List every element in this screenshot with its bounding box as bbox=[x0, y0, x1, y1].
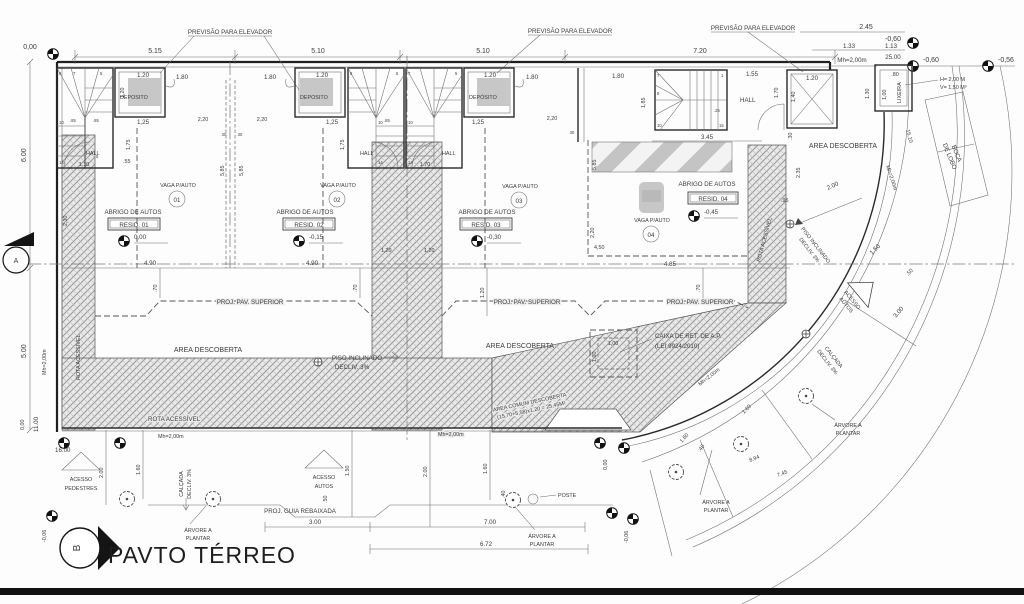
level-marker-bl1 bbox=[59, 438, 70, 449]
proj-pav-label-1: PROJ. PAV. SUPERIOR bbox=[217, 299, 284, 306]
dim-3-00-bot: 3.00 bbox=[309, 519, 322, 526]
dim-2-20-b: 2,20 bbox=[257, 117, 268, 123]
tree-3 bbox=[506, 493, 521, 508]
level-marker-u1 bbox=[119, 236, 130, 247]
dim-1-30-lix: 1.30 bbox=[865, 89, 871, 100]
lixeira-box: .80 1,00 LIXEIRA 1.30 H= 2,00 M V= 1,50 … bbox=[865, 65, 967, 111]
svg-text:2.00: 2.00 bbox=[99, 468, 105, 479]
level-marker-u3 bbox=[472, 236, 483, 247]
guia-rebaixada: PROJ. GUIA REBAIXADA bbox=[264, 508, 337, 515]
svg-text:10: 10 bbox=[657, 123, 662, 128]
dim-1-10-u1: 1.10 bbox=[79, 162, 90, 168]
svg-text:1,00: 1,00 bbox=[608, 341, 619, 347]
lixeira-note-v: V= 1,50 M³ bbox=[940, 85, 967, 91]
dim-1-33: 1.33 bbox=[843, 43, 856, 50]
dim-5-10b: 5.10 bbox=[476, 48, 490, 55]
mh-bottom-1: Mh=2,00m bbox=[158, 434, 184, 440]
svg-text:1,20: 1,20 bbox=[424, 248, 435, 254]
rota-bottom: ROTA ACESSÍVEL bbox=[148, 416, 201, 423]
svg-text:5: 5 bbox=[100, 71, 103, 76]
dim-1-80-u2: 1.80 bbox=[264, 74, 277, 81]
dim-1-75-u1: 1,75 bbox=[126, 140, 132, 151]
dim-1-00-lix: 1,00 bbox=[882, 90, 888, 101]
dim-4-90-u2: 4.90 bbox=[306, 260, 319, 267]
door-arc-dep1 bbox=[166, 79, 174, 87]
level-marker-bl2 bbox=[115, 438, 126, 449]
vaga-1-num: 01 bbox=[174, 197, 181, 204]
level-minus056: -0,56 bbox=[998, 57, 1014, 64]
svg-text:ÁRVORE A: ÁRVORE A bbox=[184, 527, 212, 534]
dim-15-10: 15.10 bbox=[904, 129, 913, 144]
elevator-shaft-2 bbox=[300, 78, 333, 106]
dim-2-30-left: 2,30 bbox=[63, 216, 69, 227]
deposito-3-label: DEPÓSITO bbox=[469, 94, 497, 101]
level-marker-c1 bbox=[595, 438, 606, 449]
poste-label: POSTE bbox=[558, 493, 577, 499]
level-minus060-top: -0,60 bbox=[885, 36, 901, 43]
svg-text:1,20: 1,20 bbox=[381, 248, 392, 254]
mh-bottom-2: Mh=2,00m bbox=[438, 432, 464, 438]
svg-text:1,00: 1,00 bbox=[592, 352, 598, 363]
acesso-autos-1: ACESSO bbox=[313, 475, 335, 481]
dim-8-94: 8.94 bbox=[749, 454, 761, 463]
svg-text:1.60: 1.60 bbox=[679, 432, 690, 444]
caixa-label-1: CAIXA DE RET. DE A.P. bbox=[655, 333, 722, 340]
svg-text:.25: .25 bbox=[714, 108, 720, 113]
svg-text:7: 7 bbox=[408, 71, 411, 76]
plan-title: PAVTO TÉRREO bbox=[108, 542, 296, 568]
dim-055-u1: .55 bbox=[123, 159, 131, 165]
dim-5-10a: 5.10 bbox=[311, 48, 325, 55]
dim-1-70-u4: 1.70 bbox=[774, 88, 780, 99]
svg-text:.70: .70 bbox=[696, 285, 702, 293]
area-descoberta-2: AREA DESCOBERTA bbox=[486, 343, 555, 350]
elevator-shaft-1 bbox=[128, 78, 161, 106]
tree-6 bbox=[799, 389, 814, 404]
band-spoke-4 bbox=[650, 470, 672, 556]
level-marker-title bbox=[47, 511, 58, 522]
slope-symbol-curve bbox=[786, 220, 794, 228]
dim-2-00-curve: 2.00 bbox=[826, 180, 840, 192]
level-marker-u4 bbox=[689, 211, 700, 222]
dim-6-00: 6.00 bbox=[21, 148, 28, 162]
dim-2-20-a: 2,20 bbox=[198, 117, 209, 123]
slope-symbol-court bbox=[314, 358, 322, 366]
svg-text:.85: .85 bbox=[93, 118, 99, 123]
dim-2-35: 2.35 bbox=[796, 168, 802, 179]
dim-5-15: 5.15 bbox=[148, 48, 162, 55]
level-marker-c2 bbox=[619, 443, 630, 454]
area-descoberta-1: AREA DESCOBERTA bbox=[174, 347, 243, 354]
vaga-1: VAGA P/AUTO bbox=[160, 183, 196, 189]
acesso-autos-triangle bbox=[305, 450, 343, 468]
svg-text:.70: .70 bbox=[353, 285, 359, 293]
svg-text:10: 10 bbox=[408, 120, 413, 125]
dim-4-50-u4: 4,50 bbox=[594, 245, 605, 251]
svg-text:2.00: 2.00 bbox=[423, 467, 429, 478]
svg-text:5: 5 bbox=[396, 71, 399, 76]
piso-inclinado-curve: PISO INCLINADO DECLIV. 3% bbox=[793, 226, 831, 269]
previsao-elevador-1: PREVISÃO PARA ELEVADOR bbox=[188, 29, 273, 36]
svg-text:5,85: 5,85 bbox=[592, 160, 598, 171]
dim-1-75-u2: 1,75 bbox=[340, 140, 346, 151]
tree-1 bbox=[120, 492, 135, 507]
level-u4: -0,45 bbox=[704, 209, 719, 216]
section-a-letter: A bbox=[14, 258, 19, 265]
dim-1-20-u3: 1.20 bbox=[484, 72, 497, 79]
hall-3: HALL bbox=[442, 151, 456, 157]
level-000-left: 0,00 bbox=[20, 420, 26, 431]
resid-4: RESID. 04 bbox=[698, 196, 728, 203]
dim-1-80-u1: 1.80 bbox=[176, 74, 189, 81]
svg-text:14: 14 bbox=[378, 160, 383, 165]
svg-text:ÁRVORE A: ÁRVORE A bbox=[834, 422, 862, 429]
mh-curve-1: Mh=2,00m bbox=[884, 165, 898, 192]
dim-2-20-u4: 2,20 bbox=[590, 228, 596, 239]
resid-3: RESID. 03 bbox=[471, 222, 501, 229]
dim-5-00: 5.00 bbox=[21, 344, 28, 358]
svg-text:ÁRVORE A: ÁRVORE A bbox=[702, 499, 730, 506]
level-marker-1 bbox=[908, 38, 919, 49]
caixa-label-2: (LEI 9924/2010) bbox=[655, 343, 699, 350]
hall-1: HALL bbox=[86, 151, 100, 157]
svg-text:10: 10 bbox=[59, 120, 64, 125]
abrigo-1: ABRIGO DE AUTOS bbox=[105, 209, 162, 216]
level-minus060-b: -0,60 bbox=[923, 57, 939, 64]
mh-top: Mh=2,00m bbox=[837, 57, 866, 64]
top-dimension-chain: 5.15 5.10 5.10 7.20 2.45 -0,60 1.33 1.13… bbox=[23, 24, 1014, 71]
svg-text:5: 5 bbox=[455, 71, 458, 76]
dim-3-45: 3.45 bbox=[701, 134, 714, 141]
abrigo-4: ABRIGO DE AUTOS bbox=[679, 181, 736, 188]
resid-2: RESID. 02 bbox=[294, 222, 324, 229]
svg-text:14: 14 bbox=[59, 160, 64, 165]
hall-2: HALL bbox=[360, 151, 374, 157]
lixeira-note-h: H= 2,00 M bbox=[940, 77, 966, 83]
level-marker-u2 bbox=[294, 236, 305, 247]
svg-text:1.50: 1.50 bbox=[345, 466, 351, 477]
street-curb bbox=[148, 505, 613, 517]
dim-4-85: 4.85 bbox=[664, 261, 677, 268]
dim-4-90-u1: 4.90 bbox=[144, 260, 157, 267]
vaga-2-num: 02 bbox=[334, 197, 341, 204]
dim-1-85-u4: 1,85 bbox=[641, 98, 647, 109]
svg-text:PLANTAR: PLANTAR bbox=[704, 508, 729, 514]
dim-050-curve: .50 bbox=[905, 268, 915, 278]
svg-text:14: 14 bbox=[408, 160, 413, 165]
dim-1-25-u3: 1,25 bbox=[472, 119, 485, 126]
dim-1-20-u4: 1.20 bbox=[806, 75, 819, 82]
section-b-letter: B bbox=[72, 544, 83, 551]
vaga-4-num: 04 bbox=[648, 232, 655, 239]
svg-text:8: 8 bbox=[59, 71, 62, 76]
svg-text:1.60: 1.60 bbox=[483, 464, 489, 475]
svg-text:.50: .50 bbox=[323, 496, 329, 504]
svg-text:DECLIV. 3%: DECLIV. 3% bbox=[187, 469, 193, 499]
dim-11-00: 11.00 bbox=[33, 416, 40, 432]
driveway-notch bbox=[545, 409, 631, 430]
dim-1-70-u3: 1.70 bbox=[420, 162, 431, 168]
svg-text:1.60: 1.60 bbox=[136, 465, 142, 476]
svg-text:.70: .70 bbox=[153, 285, 159, 293]
svg-text:8: 8 bbox=[350, 71, 353, 76]
svg-text:30: 30 bbox=[570, 130, 575, 135]
dim-1-80-u3: 1.80 bbox=[526, 74, 539, 81]
previsao-elevador-2: PREVISÃO PARA ELEVADOR bbox=[528, 28, 613, 35]
dim-1-20-u2: 1.20 bbox=[316, 72, 329, 79]
proj-pav-label-2: PROJ. PAV. SUPERIOR bbox=[494, 299, 561, 306]
slope-symbol-calcada bbox=[802, 330, 810, 338]
elevator-shaft-3 bbox=[477, 78, 510, 106]
abrigo-2: ABRIGO DE AUTOS bbox=[277, 209, 334, 216]
abrigo-3: ABRIGO DE AUTOS bbox=[459, 209, 516, 216]
svg-text:CALÇADA: CALÇADA bbox=[179, 471, 185, 497]
level-u3: -0,30 bbox=[487, 234, 502, 241]
dim-080-lix: .80 bbox=[891, 72, 899, 78]
acesso-ped-1: ACESSO bbox=[70, 477, 92, 483]
acesso-ped-2: PEDESTRES bbox=[65, 486, 98, 492]
acesso-autos-2: AUTOS bbox=[315, 484, 334, 490]
level-marker-2 bbox=[908, 61, 919, 72]
calcada-curve-label: CALÇADA DECLIV. 3% bbox=[815, 344, 844, 376]
floor-plan-drawing: BOCA DE LOBO 5.15 5.10 5.10 7.20 2.45 -0… bbox=[0, 0, 1024, 604]
dim-1-25-u1: 1,25 bbox=[137, 119, 150, 126]
dim-1-50-curve: 1.50 bbox=[868, 243, 882, 257]
vaga-4: VAGA P/AUTO bbox=[634, 218, 670, 224]
svg-text:PLANTAR: PLANTAR bbox=[836, 431, 861, 437]
dim-25-00: 25.00 bbox=[885, 54, 901, 61]
decliv-1: DECLIV. 3% bbox=[335, 364, 370, 371]
vaga-3-num: 03 bbox=[516, 198, 523, 205]
dim-1-20-court: 1.20 bbox=[480, 288, 486, 299]
sheet-border-line bbox=[0, 588, 1024, 595]
mh-left: Mh=2,00m bbox=[42, 349, 48, 375]
level-minus-006: -0,06 bbox=[42, 530, 48, 542]
dim-6-72: 6.72 bbox=[480, 541, 493, 548]
svg-text:.85: .85 bbox=[384, 118, 390, 123]
svg-text:8: 8 bbox=[657, 91, 660, 96]
tree-4 bbox=[669, 465, 684, 480]
level-006-curve: -0,06 bbox=[624, 531, 630, 543]
tree-5 bbox=[734, 437, 749, 452]
dim-7-45: 7.45 bbox=[777, 469, 789, 478]
hall-4: HALL bbox=[740, 97, 756, 104]
dim-1-55: 1.55 bbox=[746, 71, 759, 78]
dim-095: .95 bbox=[781, 198, 789, 204]
dim-7-00: 7.00 bbox=[484, 519, 497, 526]
svg-text:10: 10 bbox=[378, 120, 383, 125]
svg-text:30: 30 bbox=[238, 132, 243, 137]
svg-text:ÁRVORE A: ÁRVORE A bbox=[528, 533, 556, 540]
door-arc-4 bbox=[758, 104, 784, 130]
lixeira-label: LIXEIRA bbox=[897, 82, 903, 103]
svg-text:5,85: 5,85 bbox=[239, 166, 245, 177]
dim-2-45: 2.45 bbox=[859, 24, 873, 31]
deposito-2-label: DEPOSITO bbox=[300, 95, 328, 101]
svg-text:5,85: 5,85 bbox=[220, 166, 226, 177]
svg-text:15: 15 bbox=[719, 123, 724, 128]
svg-text:.85: .85 bbox=[70, 118, 76, 123]
level-marker-3 bbox=[983, 61, 994, 72]
title-block: -0,06 B PAVTO TÉRREO bbox=[0, 511, 1024, 595]
acesso-pedestres-triangle bbox=[62, 452, 100, 470]
svg-text:2,20: 2,20 bbox=[547, 116, 558, 122]
level-u2: -0,15 bbox=[309, 234, 324, 241]
door-arc-dep3 bbox=[515, 79, 523, 87]
poste-symbol bbox=[528, 494, 538, 504]
resid-1: RESID. 01 bbox=[119, 222, 149, 229]
piso-inclinado-1: PISO INCLINADO bbox=[332, 355, 382, 362]
vaga-3: VAGA P/AUTO bbox=[502, 184, 538, 190]
previsao-elevador-3: PREVISÃO PARA ELEVADOR bbox=[711, 25, 796, 32]
svg-text:PLANTAR: PLANTAR bbox=[530, 542, 555, 548]
svg-text:7: 7 bbox=[657, 73, 660, 78]
dim-030-u4: .30 bbox=[788, 133, 794, 141]
dim-1-40-u4: 1,40 bbox=[791, 92, 797, 103]
svg-text:1: 1 bbox=[721, 73, 724, 78]
rota-left: ROTA ACESSÍVEL bbox=[75, 335, 82, 380]
section-marker-a: A bbox=[3, 232, 34, 273]
dim-3-00-curve: 3.00 bbox=[892, 305, 905, 319]
svg-text:7: 7 bbox=[73, 71, 76, 76]
tree-2 bbox=[206, 492, 221, 507]
dim-1-25-u2: 1,25 bbox=[326, 119, 339, 126]
level-marker-c4 bbox=[628, 514, 639, 525]
level-marker-c3 bbox=[607, 508, 618, 519]
car-icon bbox=[639, 182, 664, 213]
future-elevator-stripe-hatch bbox=[592, 142, 732, 172]
hatched-walkways bbox=[62, 135, 786, 432]
bottom-walkway-hatch bbox=[62, 358, 492, 428]
dim-1-13: 1.13 bbox=[885, 43, 898, 50]
area-descoberta-3: AREA DESCOBERTA bbox=[809, 143, 878, 150]
dim-1-20v-u1: 1,20 bbox=[120, 88, 126, 99]
boca-de-lobo-label: BOCA DE LOBO bbox=[941, 140, 965, 171]
level-000-curve: 0,00 bbox=[603, 460, 609, 471]
floor-plan-sheet: BOCA DE LOBO 5.15 5.10 5.10 7.20 2.45 -0… bbox=[0, 0, 1024, 604]
dim-1-80-u4: 1.80 bbox=[612, 73, 625, 80]
level-000-topleft: 0,00 bbox=[23, 44, 37, 51]
proj-pav-label-3: PROJ. PAV. SUPERIOR bbox=[667, 299, 734, 306]
dim-7-20: 7.20 bbox=[693, 48, 707, 55]
level-u1: 0,00 bbox=[134, 234, 147, 241]
vaga-2: VAGA P/AUTO bbox=[320, 183, 356, 189]
calcada-label-left: CALÇADA DECLIV. 3% bbox=[179, 469, 193, 499]
dim-1-20-u1: 1.20 bbox=[137, 72, 150, 79]
level-marker-topleft bbox=[48, 49, 59, 60]
